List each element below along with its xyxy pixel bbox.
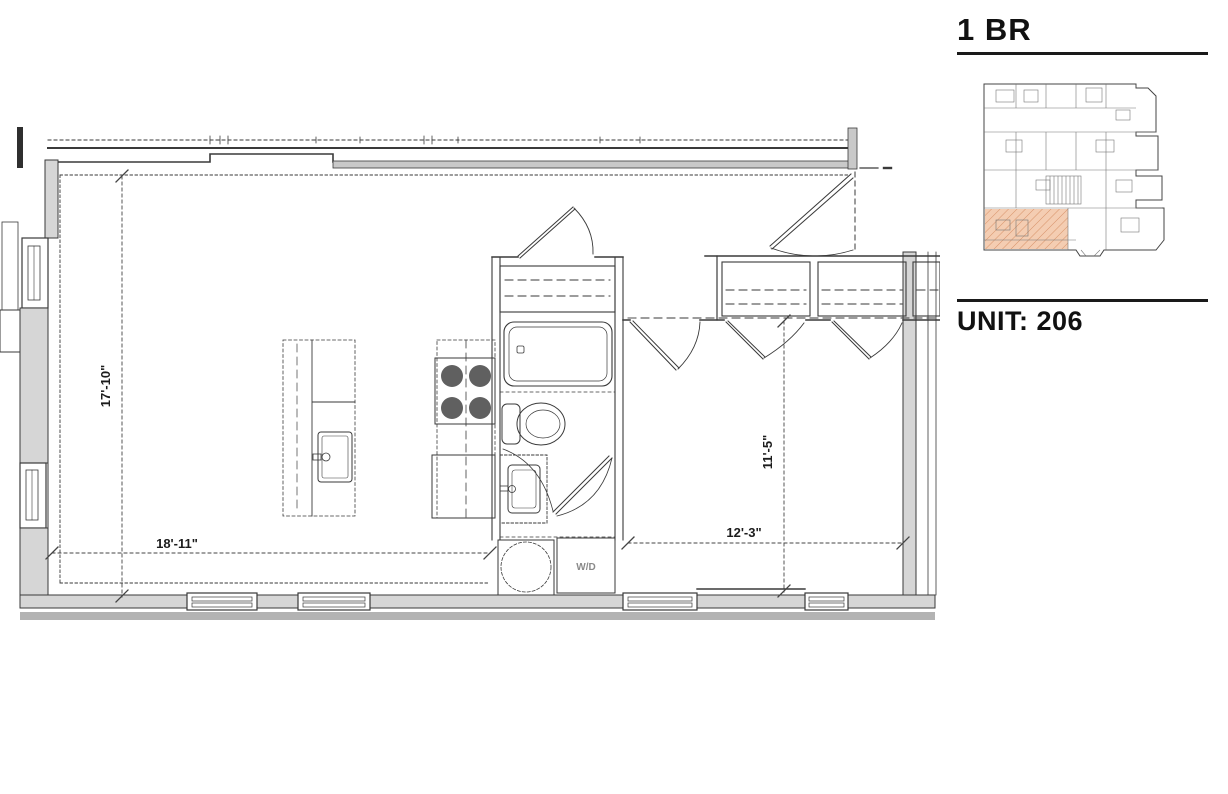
window <box>22 238 48 308</box>
hall-closet-door <box>518 207 593 258</box>
window <box>298 593 370 610</box>
bedroom-door <box>630 321 700 370</box>
kitchen-counter <box>432 340 495 518</box>
dim-living-width: 18'-11" <box>156 536 198 551</box>
bedroom-closets <box>623 256 940 320</box>
dim-living-depth: 17'-10" <box>98 365 113 408</box>
closet-door <box>832 321 902 359</box>
window <box>623 593 697 610</box>
washer <box>498 540 554 595</box>
closet-door <box>726 321 804 359</box>
dim-bedroom-width: 12'-3" <box>726 525 761 540</box>
vanity-sink <box>500 455 547 523</box>
left-wall <box>0 160 58 598</box>
toilet <box>502 403 565 445</box>
window <box>187 593 257 610</box>
divider-bottom <box>957 299 1208 302</box>
corridor-wall <box>17 127 891 169</box>
dim-bedroom-depth: 11'-5" <box>760 435 775 470</box>
key-plan-highlight <box>985 209 1068 249</box>
window <box>805 593 848 610</box>
entry-door <box>770 172 855 256</box>
washer-dryer-label: W/D <box>576 562 595 573</box>
key-plan-stair <box>1046 176 1081 204</box>
key-plan <box>976 80 1174 260</box>
hall-closet <box>500 266 615 312</box>
divider-top <box>957 52 1208 55</box>
window <box>20 463 46 528</box>
bathroom-door <box>503 449 612 516</box>
bathroom-block <box>492 207 623 595</box>
unit-heading: UNIT: 206 <box>957 306 1083 337</box>
right-wall <box>903 252 936 595</box>
island-sink <box>313 432 352 482</box>
kitchen-island <box>283 340 355 516</box>
floor-plan-page: 17'-10" 18'-11" 12'-3" 11'-5" W/D 1 BR <box>0 0 1228 794</box>
bottom-wall <box>20 589 935 620</box>
plan-type-heading: 1 BR <box>957 12 1032 48</box>
bathtub <box>500 322 615 392</box>
stove <box>435 358 495 424</box>
floor-plan-drawing: 17'-10" 18'-11" 12'-3" 11'-5" W/D <box>0 0 940 794</box>
